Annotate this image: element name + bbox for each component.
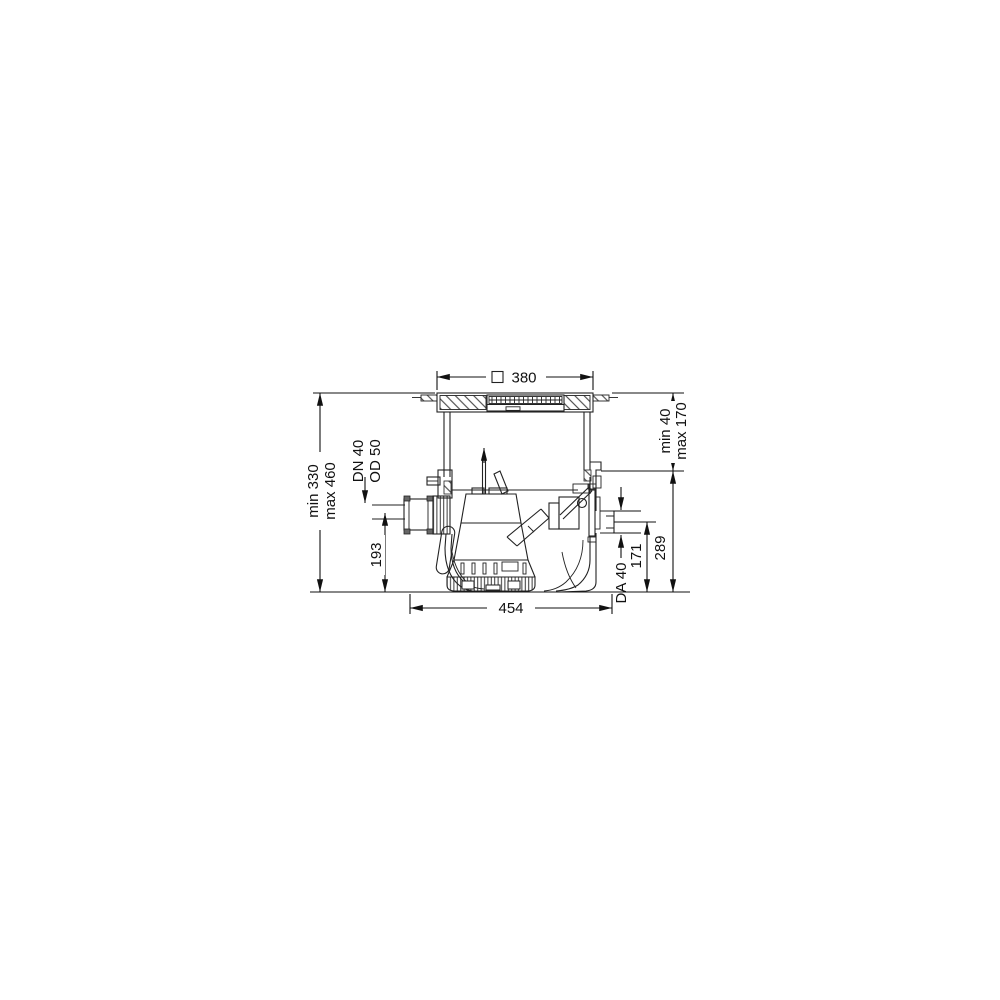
sleeve-clamp-br [427,529,433,534]
inlet-threaded-spigot [433,496,450,534]
cover-hatch-right [564,396,590,410]
dim-cover-max: max 170 [673,402,690,460]
flange-bolt-bottom [588,537,596,542]
valve-bracket [573,484,589,493]
valve-neck [549,503,559,529]
cover-clip-right [593,395,609,401]
sleeve-clamp-tl [404,496,410,501]
cover-clip-left [421,395,437,401]
pump-foot-3 [508,581,520,589]
sleeve-clamp-bl [404,529,410,534]
cover-insert [487,395,564,411]
upper-section [437,412,593,477]
pump-foot-1 [462,581,474,589]
tank-sump-curve-1 [544,540,583,591]
flange-right-step [590,462,601,477]
cover-grate-ticks [489,397,562,403]
pump-inlet-slots [461,562,526,574]
inlet-sleeve [404,499,433,530]
outlet-assembly [507,484,600,546]
technical-drawing-page: 380 min 330 max 460 DN 40 OD 50 193 454 … [0,0,1000,1000]
flange-left [427,470,452,498]
discharge-duct-mark [528,526,534,532]
wall-flange-plate [589,490,595,536]
flange-right-block [593,476,601,488]
tank-sump-curve-2 [562,552,576,588]
inlet-pipe [372,505,405,519]
valve-lever [560,487,592,519]
cover-assembly [412,393,618,412]
dim-height-max: max 460 [322,462,339,520]
dimension-body-height: 289 [652,471,673,592]
inlet-od-label: OD 50 [367,439,384,482]
outlet-pipe [600,511,614,533]
cover-hatch-left [440,396,486,410]
dim-inlet-height-value: 193 [368,542,385,567]
tank-wall-right-outer [560,477,596,592]
dimension-cover-range: min 40 max 170 [601,393,691,471]
inlet-assembly [372,496,450,534]
outlet-pipe-outline [600,511,614,533]
flange-left-seal [444,481,451,494]
sleeve-clamp-tr [427,496,433,501]
inlet-sleeve-lines [409,499,428,530]
dim-width-value: 454 [498,600,523,617]
outlet-pipe-wall [606,516,614,528]
discharge-duct [507,509,549,546]
cover-latch [506,407,520,411]
dimension-inlet-height: 193 [368,513,385,592]
inlet-dn-label: DN 40 [350,440,367,483]
dim-outlet-height-value: 171 [628,543,645,568]
dimension-top-width: 380 [437,367,593,390]
upper-wall-right [584,412,590,470]
upper-wall-left [444,412,450,477]
dim-outlet-diameter-label: DA 40 [613,563,630,604]
pump-foot-2 [486,585,500,590]
pump-motor-head [461,494,521,523]
dim-top-width-value: 380 [511,370,536,387]
dimension-overall-width: 454 [410,594,612,617]
dim-cover-min: min 40 [657,408,674,453]
dimension-inlet-connection: DN 40 OD 50 [350,439,384,503]
dim-body-height-value: 289 [652,535,669,560]
pump-station-drawing: 380 min 330 max 460 DN 40 OD 50 193 454 … [0,0,1000,1000]
dim-height-min: min 330 [305,464,322,517]
